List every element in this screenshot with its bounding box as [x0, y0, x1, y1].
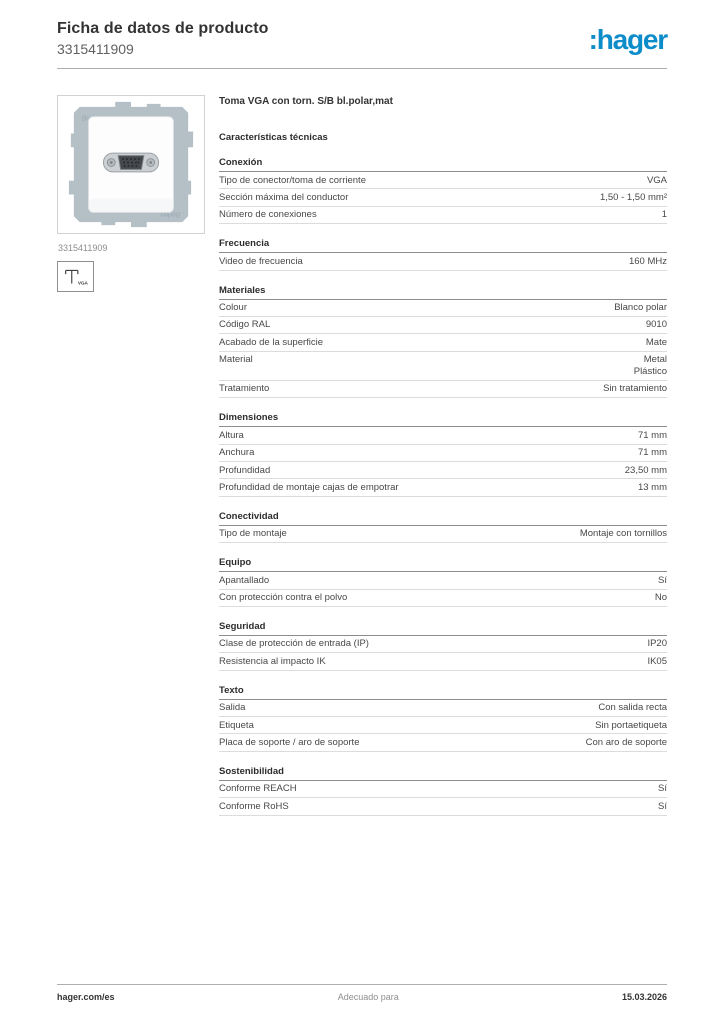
spec-row-value: Con salida recta: [598, 702, 667, 714]
spec-section: SeguridadClase de protección de entrada …: [219, 621, 667, 671]
spec-row: Altura71 mm: [219, 427, 667, 444]
spec-section: TextoSalidaCon salida rectaEtiquetaSin p…: [219, 685, 667, 752]
spec-row-label: Número de conexiones: [219, 209, 329, 221]
page-title: Ficha de datos de producto: [57, 20, 667, 38]
spec-row-label: Código RAL: [219, 319, 282, 331]
spec-row-label: Profundidad: [219, 465, 282, 477]
product-number: 3315411909: [57, 41, 667, 57]
spec-row-value: No: [655, 592, 667, 604]
product-datasheet-page: Ficha de datos de producto 3315411909 :h…: [0, 0, 724, 1024]
tech-characteristics-heading: Características técnicas: [219, 132, 667, 143]
spec-row: Placa de soporte / aro de soporteCon aro…: [219, 734, 667, 751]
hager-logo: :hager: [589, 26, 667, 54]
spec-row-value: 1: [662, 209, 667, 221]
spec-section-title: Sostenibilidad: [219, 766, 667, 781]
spec-section: FrecuenciaVideo de frecuencia160 MHz: [219, 238, 667, 270]
spec-section: ConexiónTipo de conector/toma de corrien…: [219, 157, 667, 224]
spec-row-label: Tipo de conector/toma de corriente: [219, 175, 378, 187]
spec-row-label: Colour: [219, 302, 259, 314]
spec-row-label: Conforme RoHS: [219, 801, 301, 813]
spec-row: Profundidad23,50 mm: [219, 462, 667, 479]
vga-socket-illustration: Berker Berker: [58, 96, 204, 233]
vga-icon-label: VGA: [78, 280, 89, 285]
spec-row: ApantalladoSí: [219, 572, 667, 589]
footer-date: 15.03.2026: [622, 992, 667, 1002]
spec-section-title: Materiales: [219, 285, 667, 300]
vga-socket-icon: VGA: [57, 261, 94, 292]
spec-table: ConexiónTipo de conector/toma de corrien…: [219, 157, 667, 816]
spec-row-label: Anchura: [219, 447, 266, 459]
image-caption: 3315411909: [58, 243, 107, 253]
spec-row-value: Sin portaetiqueta: [595, 720, 667, 732]
spec-row-value: Sí: [658, 801, 667, 813]
page-header: Ficha de datos de producto 3315411909 :h…: [57, 20, 667, 66]
spec-row-value: 71 mm: [638, 430, 667, 442]
spec-row-label: Tratamiento: [219, 383, 281, 395]
spec-section: ConectividadTipo de montajeMontaje con t…: [219, 511, 667, 543]
spec-row-value: 160 MHz: [629, 256, 667, 268]
spec-row: EtiquetaSin portaetiqueta: [219, 717, 667, 734]
spec-row: Con protección contra el polvoNo: [219, 590, 667, 607]
spec-row-value: 71 mm: [638, 447, 667, 459]
spec-row-value: Sí: [658, 783, 667, 795]
spec-row-value: IP20: [647, 638, 667, 650]
spec-row-label: Con protección contra el polvo: [219, 592, 359, 604]
page-footer: hager.com/es Adecuado para 15.03.2026: [57, 992, 667, 1002]
spec-row-label: Altura: [219, 430, 256, 442]
spec-row-value: Sí: [658, 575, 667, 587]
spec-row-value: IK05: [647, 656, 667, 668]
spec-row-label: Sección máxima del conductor: [219, 192, 360, 204]
spec-row: Clase de protección de entrada (IP)IP20: [219, 636, 667, 653]
spec-row: Resistencia al impacto IKIK05: [219, 653, 667, 670]
spec-row: SalidaCon salida recta: [219, 700, 667, 717]
spec-row-label: Placa de soporte / aro de soporte: [219, 737, 371, 749]
spec-row: Tipo de conector/toma de corrienteVGA: [219, 172, 667, 189]
spec-row-label: Resistencia al impacto IK: [219, 656, 338, 668]
spec-section: DimensionesAltura71 mmAnchura71 mmProfun…: [219, 412, 667, 497]
spec-row-value: 1,50 - 1,50 mm²: [600, 192, 667, 204]
spec-row: Tipo de montajeMontaje con tornillos: [219, 526, 667, 543]
spec-row-value: Blanco polar: [614, 302, 667, 314]
spec-row-label: Conforme REACH: [219, 783, 309, 795]
spec-row: Código RAL9010: [219, 317, 667, 334]
spec-row: Número de conexiones1: [219, 207, 667, 224]
spec-row: Anchura71 mm: [219, 445, 667, 462]
spec-row: MaterialMetal Plástico: [219, 352, 667, 381]
main-content: Toma VGA con torn. S/B bl.polar,mat Cara…: [219, 96, 667, 816]
spec-section-title: Conectividad: [219, 511, 667, 526]
spec-row: Profundidad de montaje cajas de empotrar…: [219, 479, 667, 496]
spec-row-value: 23,50 mm: [625, 465, 667, 477]
spec-row-label: Salida: [219, 702, 257, 714]
spec-row: Sección máxima del conductor1,50 - 1,50 …: [219, 189, 667, 206]
spec-row-value: Con aro de soporte: [586, 737, 667, 749]
spec-section-title: Seguridad: [219, 621, 667, 636]
spec-row-value: 13 mm: [638, 482, 667, 494]
spec-row-label: Material: [219, 354, 265, 366]
spec-section-title: Dimensiones: [219, 412, 667, 427]
spec-row-value: Sin tratamiento: [603, 383, 667, 395]
spec-row: Acabado de la superficieMate: [219, 334, 667, 351]
spec-row: Conforme RoHSSí: [219, 798, 667, 815]
spec-row-label: Clase de protección de entrada (IP): [219, 638, 381, 650]
footer-suitable-for-label: Adecuado para: [115, 992, 622, 1002]
product-image: Berker Berker: [57, 95, 205, 234]
spec-row-label: Apantallado: [219, 575, 281, 587]
spec-row-value: Montaje con tornillos: [580, 528, 667, 540]
product-name: Toma VGA con torn. S/B bl.polar,mat: [219, 96, 667, 107]
spec-row-label: Video de frecuencia: [219, 256, 315, 268]
spec-row: TratamientoSin tratamiento: [219, 381, 667, 398]
spec-section-title: Texto: [219, 685, 667, 700]
spec-row-label: Tipo de montaje: [219, 528, 299, 540]
spec-row-label: Acabado de la superficie: [219, 337, 335, 349]
spec-row: ColourBlanco polar: [219, 300, 667, 317]
header-divider: [57, 68, 667, 69]
spec-row: Conforme REACHSí: [219, 781, 667, 798]
spec-row-value: Metal Plástico: [634, 354, 667, 378]
spec-section: SostenibilidadConforme REACHSíConforme R…: [219, 766, 667, 816]
spec-row-label: Etiqueta: [219, 720, 266, 732]
spec-section-title: Conexión: [219, 157, 667, 172]
spec-section: MaterialesColourBlanco polarCódigo RAL90…: [219, 285, 667, 399]
spec-section: EquipoApantalladoSíCon protección contra…: [219, 557, 667, 607]
spec-section-title: Equipo: [219, 557, 667, 572]
spec-section-title: Frecuencia: [219, 238, 667, 253]
spec-row-value: 9010: [646, 319, 667, 331]
spec-row-value: VGA: [647, 175, 667, 187]
footer-website-link[interactable]: hager.com/es: [57, 992, 115, 1002]
footer-divider: [57, 984, 667, 985]
spec-row-label: Profundidad de montaje cajas de empotrar: [219, 482, 411, 494]
spec-row-value: Mate: [646, 337, 667, 349]
spec-row: Video de frecuencia160 MHz: [219, 253, 667, 270]
